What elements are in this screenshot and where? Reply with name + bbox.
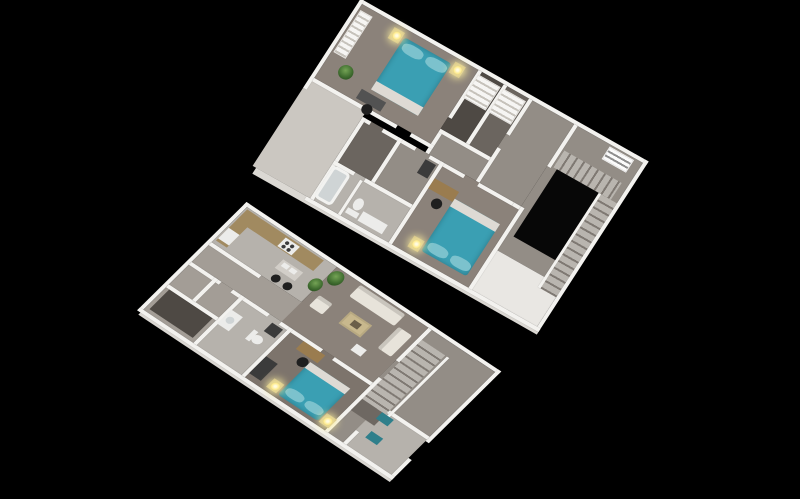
floorplan-stage [0,0,800,499]
